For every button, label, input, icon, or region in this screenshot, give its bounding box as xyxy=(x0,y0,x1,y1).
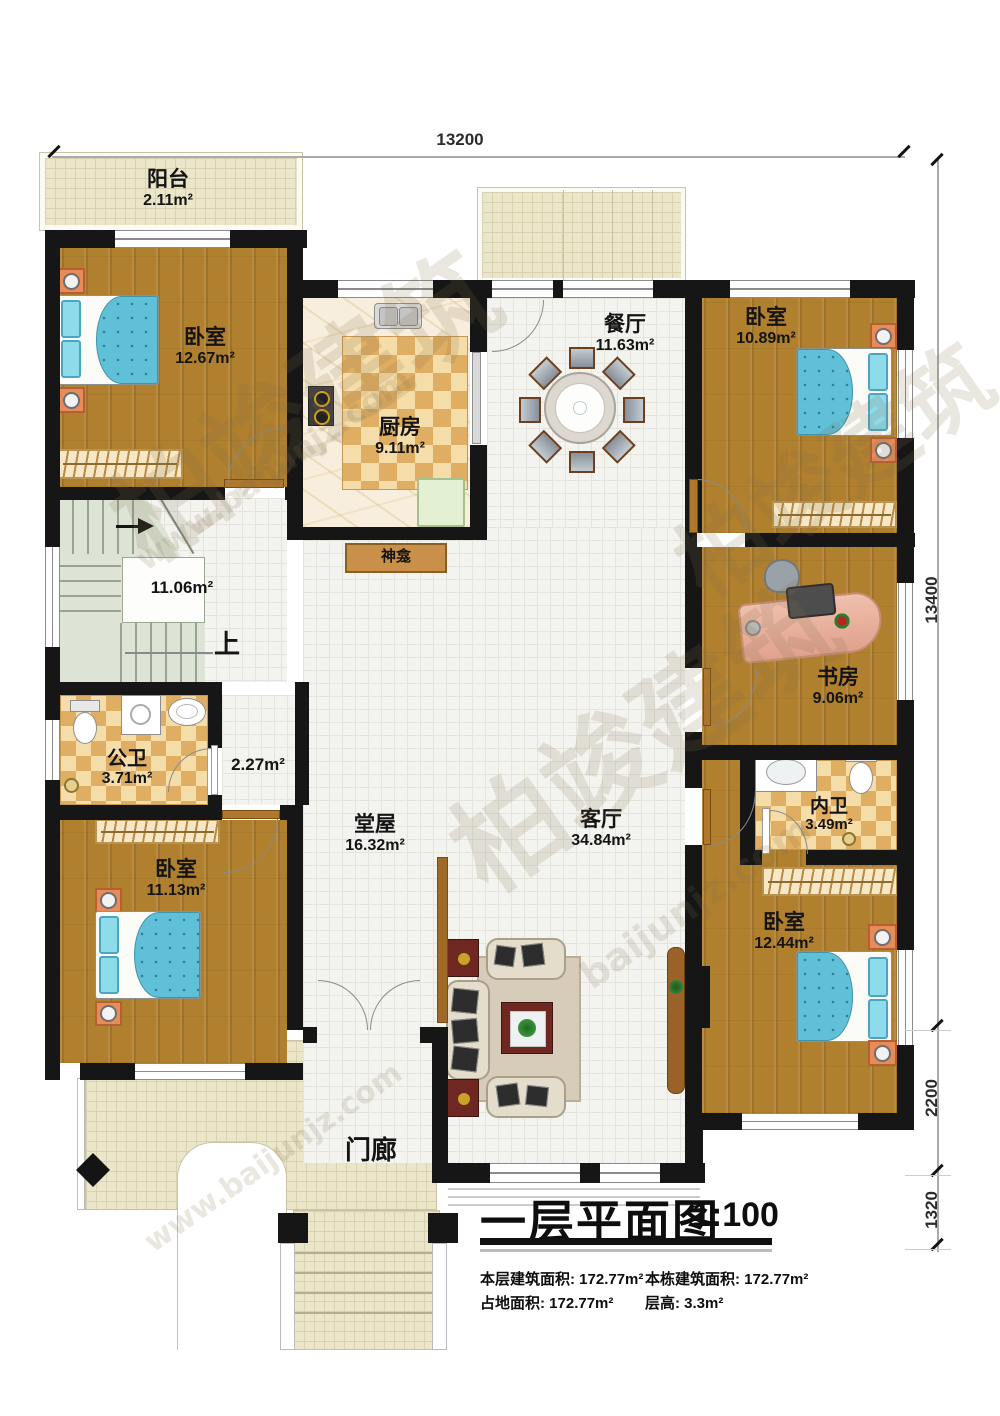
door-leaf xyxy=(703,789,711,845)
wall xyxy=(660,1163,705,1183)
window xyxy=(135,1063,245,1080)
dimension-extension xyxy=(905,1030,951,1031)
nightstand xyxy=(868,1040,897,1066)
wall xyxy=(806,850,905,865)
washing-machine xyxy=(121,695,161,735)
stair-treads-left xyxy=(57,558,121,612)
porch-side-rail xyxy=(77,1078,85,1210)
wall xyxy=(470,445,487,527)
bed-blanket xyxy=(797,952,853,1041)
terrace-divider xyxy=(592,190,593,280)
window xyxy=(898,350,913,438)
dimension-line-top xyxy=(52,156,905,158)
dining-chair xyxy=(623,397,645,423)
shrine-label: 神龛 xyxy=(381,549,411,566)
cabinet-plant xyxy=(669,980,683,994)
step-post xyxy=(428,1213,458,1243)
wall xyxy=(897,438,914,583)
sliding-door-leaf xyxy=(472,352,481,444)
dining-chair xyxy=(519,397,541,423)
floor-plan: 13200 13400 2200 1320 阳台2.11m² 卧室12.67m²… xyxy=(0,0,1000,1416)
room-label-study: 书房9.06m² xyxy=(813,666,864,707)
wall xyxy=(740,850,762,865)
room-label-bedroom-tl: 卧室12.67m² xyxy=(175,326,235,367)
terrace-divider xyxy=(652,190,653,280)
nightstand xyxy=(57,387,85,413)
terrace-divider xyxy=(632,190,633,280)
room-label-hall: 堂屋16.32m² xyxy=(345,813,405,854)
wall xyxy=(208,795,222,805)
dimension-right-mid-label: 2200 xyxy=(922,1048,942,1148)
toilet xyxy=(70,700,100,712)
bed-blanket xyxy=(96,296,158,384)
dining-table-center xyxy=(573,401,587,415)
stair-arrow-shaft xyxy=(116,525,138,528)
pillow xyxy=(868,353,888,391)
bath-sink xyxy=(168,698,206,726)
monitor xyxy=(785,583,836,620)
porch-step-line xyxy=(295,1252,432,1254)
porch-step-line xyxy=(295,1292,432,1294)
wall xyxy=(45,682,222,695)
wall xyxy=(470,298,487,352)
pillow xyxy=(868,393,888,431)
room-label-bedroom-br: 卧室12.44m² xyxy=(754,911,814,952)
pillow xyxy=(868,999,888,1039)
room-label-inner-bath: 内卫3.49m² xyxy=(805,796,853,834)
floor-drain xyxy=(842,832,856,846)
stat-floor-height: 层高: 3.3m² xyxy=(645,1292,723,1313)
stair-arrow-head xyxy=(138,518,154,534)
desk-lamp xyxy=(745,620,761,636)
wall xyxy=(245,1063,303,1080)
pillow xyxy=(99,916,119,954)
pillow xyxy=(61,300,81,338)
window xyxy=(115,230,230,248)
porch-step-line xyxy=(295,1312,432,1314)
door-leaf xyxy=(703,668,711,726)
side-table xyxy=(447,939,479,977)
bed-blanket xyxy=(134,912,200,998)
coffee-table xyxy=(501,1002,553,1054)
wall xyxy=(295,682,309,805)
pillow xyxy=(99,956,119,994)
window xyxy=(563,280,653,298)
wall xyxy=(287,805,303,1030)
room-label-dining: 餐厅11.63m² xyxy=(596,313,655,354)
desk-flower xyxy=(833,612,851,630)
wall xyxy=(685,533,697,547)
stat-building-area: 本栋建筑面积: 172.77m² xyxy=(645,1268,808,1289)
window xyxy=(492,280,553,298)
wall xyxy=(850,280,915,298)
nightstand xyxy=(870,437,897,463)
nightstand xyxy=(57,268,85,294)
door-leaf xyxy=(762,808,770,854)
stove xyxy=(308,386,334,426)
corridor-floor xyxy=(222,695,295,805)
wall xyxy=(432,1163,490,1183)
stat-floor-area: 本层建筑面积: 172.77m² xyxy=(480,1268,643,1289)
wall xyxy=(897,700,914,950)
wall xyxy=(420,1027,432,1043)
room-label-bedroom-tr: 卧室10.89m² xyxy=(736,306,796,347)
wall xyxy=(287,527,487,540)
window xyxy=(898,583,913,700)
rear-terrace-floor xyxy=(478,188,685,282)
dimension-top-label: 13200 xyxy=(410,130,510,150)
terrace-divider xyxy=(612,190,613,280)
wall xyxy=(897,298,914,350)
sofa-cushion xyxy=(525,1085,549,1107)
corridor-area-label: 2.27m² xyxy=(231,755,285,774)
wall xyxy=(685,1113,742,1130)
stair-treads-upper xyxy=(57,492,143,554)
wardrobe xyxy=(95,819,220,844)
kitchen-rug xyxy=(342,336,468,490)
porch-step-line xyxy=(295,1272,432,1274)
step-post xyxy=(278,1213,308,1243)
room-label-kitchen: 厨房9.11m² xyxy=(375,416,425,457)
wardrobe xyxy=(762,867,898,896)
stairs-up-label: 上 xyxy=(214,630,240,659)
wall xyxy=(685,732,702,788)
wall xyxy=(685,845,702,1113)
wall xyxy=(432,1027,448,1183)
wall xyxy=(45,805,222,820)
nightstand xyxy=(95,1001,122,1026)
title-underline xyxy=(480,1238,772,1245)
kitchen-cabinet xyxy=(417,478,465,527)
wall xyxy=(433,280,492,298)
floor-drain xyxy=(64,778,79,793)
bed-blanket xyxy=(797,349,853,435)
wardrobe xyxy=(57,449,183,479)
window xyxy=(730,280,850,298)
door-leaf xyxy=(222,810,280,819)
wall xyxy=(285,487,303,500)
wall xyxy=(45,248,60,547)
pillow xyxy=(868,957,888,997)
wall xyxy=(685,547,702,668)
wall xyxy=(300,280,338,298)
stair-treads-lower xyxy=(120,623,205,685)
window xyxy=(338,280,433,298)
entry-screen xyxy=(437,857,448,1023)
title-underline-thin xyxy=(480,1249,772,1252)
wall xyxy=(45,780,60,1080)
sofa-cushion xyxy=(451,1018,479,1044)
toilet-bowl xyxy=(849,762,873,794)
dining-set xyxy=(544,372,616,444)
room-label-living: 客厅34.84m² xyxy=(571,808,631,849)
nightstand xyxy=(870,323,897,349)
wall xyxy=(580,1163,600,1183)
room-label-public-bath: 公卫3.71m² xyxy=(102,748,153,788)
dimension-right-bottom-label: 1320 xyxy=(922,1160,942,1260)
driveway-cutout xyxy=(177,1142,287,1350)
window xyxy=(742,1113,858,1130)
room-label-bedroom-bl: 卧室11.13m² xyxy=(147,858,206,899)
porch-steps-area xyxy=(293,1210,440,1350)
step-rail xyxy=(432,1243,447,1350)
wall xyxy=(230,230,307,248)
wall xyxy=(858,1113,914,1130)
dimension-right-label: 13400 xyxy=(922,550,942,650)
sofa-cushion xyxy=(451,1046,480,1073)
toilet-bowl xyxy=(73,712,97,744)
step-rail xyxy=(280,1243,295,1350)
window xyxy=(600,1163,660,1183)
room-label-porch: 门廊 xyxy=(345,1136,397,1165)
door-leaf xyxy=(689,479,698,533)
terrace-divider xyxy=(563,190,564,280)
wall xyxy=(208,695,222,748)
sofa-cushion xyxy=(496,1083,521,1108)
wall xyxy=(80,1063,135,1080)
dining-chair xyxy=(569,347,595,369)
nightstand xyxy=(868,924,897,950)
kitchen-sink xyxy=(374,303,422,329)
sofa-cushion xyxy=(494,945,517,968)
stairs-area-label: 11.06m² xyxy=(151,578,213,597)
sofa-cushion xyxy=(521,943,546,968)
page-scale: 1:100 xyxy=(692,1196,779,1235)
wall xyxy=(702,745,905,760)
pillow xyxy=(61,340,81,378)
wall xyxy=(303,1027,317,1043)
up-guide-line xyxy=(125,652,213,654)
tv-cabinet xyxy=(667,947,685,1094)
wall xyxy=(745,533,915,547)
sofa-cushion xyxy=(451,988,479,1015)
nightstand xyxy=(95,888,122,913)
wall xyxy=(45,487,225,500)
window xyxy=(45,547,60,647)
wall xyxy=(45,230,115,248)
side-table xyxy=(447,1079,479,1117)
wall xyxy=(553,280,563,298)
dining-chair xyxy=(569,451,595,473)
door-leaf xyxy=(211,745,218,795)
stat-footprint-area: 占地面积: 172.77m² xyxy=(480,1292,613,1313)
wardrobe xyxy=(772,501,897,528)
room-label-balcony: 阳台2.11m² xyxy=(143,168,193,209)
window xyxy=(490,1163,580,1183)
window xyxy=(45,720,60,780)
